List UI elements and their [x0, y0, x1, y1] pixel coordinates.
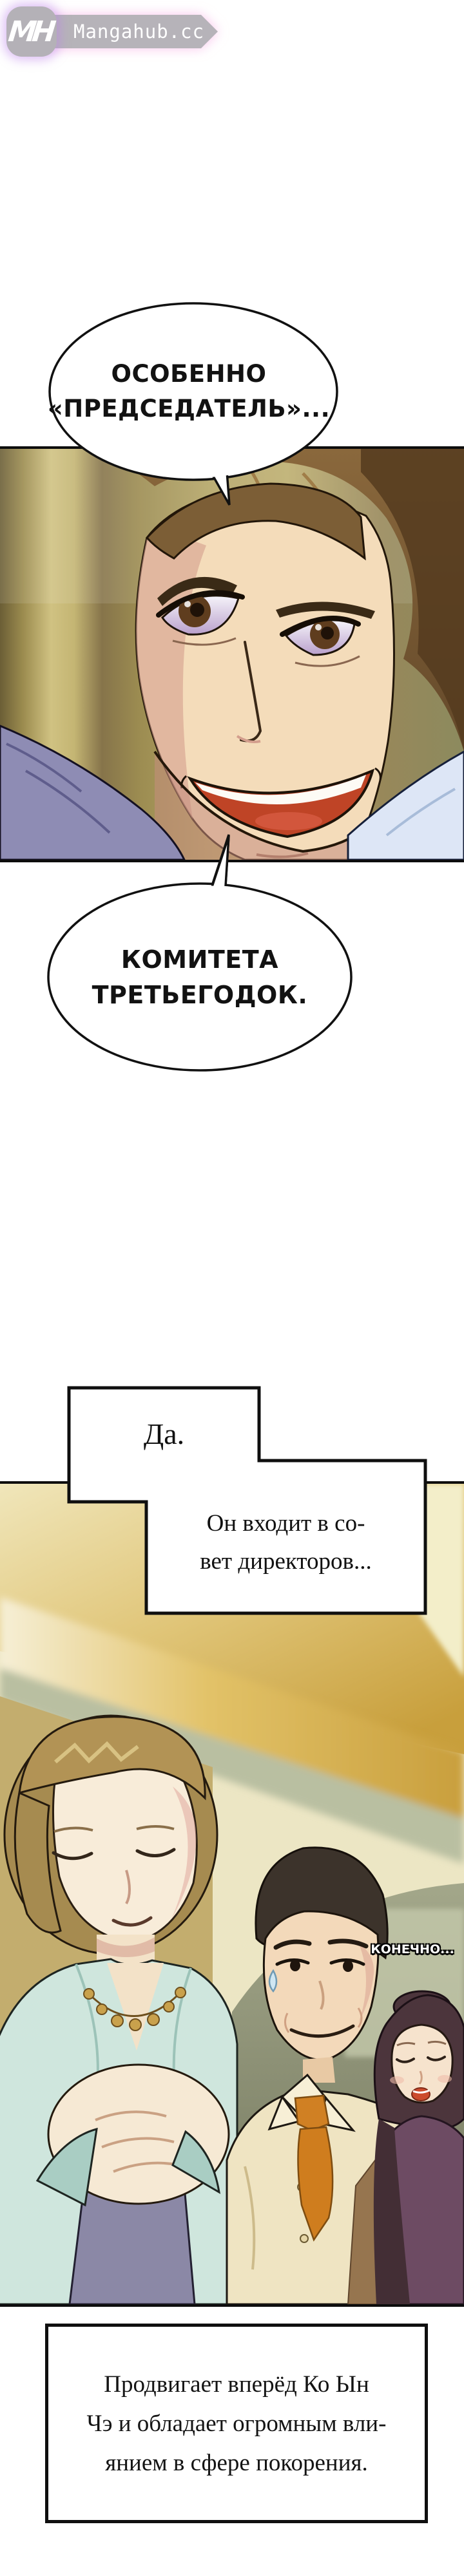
bubble-1-line-2: «ПРЕДСЕДАТЕЛЬ»...	[37, 392, 340, 426]
speech-bubble-1: ОСОБЕННО «ПРЕДСЕДАТЕЛЬ»...	[37, 290, 340, 512]
logo-monogram: MH	[6, 15, 57, 48]
narration-box-2-line-2: вет директоров...	[153, 1542, 419, 1580]
speech-bubble-2-text: КОМИТЕТА ТРЕТЬЕГОДОК.	[35, 942, 364, 1013]
webtoon-page: Mangahub.cc MH	[0, 0, 464, 2576]
logo-banner: Mangahub.cc	[36, 15, 218, 48]
woman-young	[374, 1991, 464, 2304]
narration-box-2-line-1: Он входит в со-	[153, 1504, 419, 1542]
bubble-1-line-1: ОСОБЕННО	[37, 357, 340, 392]
woman-young-mouth	[412, 2088, 430, 2101]
caption-box: Продвигает вперёд Ко Ын Чэ и обладает ог…	[45, 2324, 428, 2523]
speech-bubble-2: КОМИТЕТА ТРЕТЬЕГОДОК.	[35, 818, 364, 1075]
caption-line-2: Чэ и обладает огромным вли-	[87, 2404, 387, 2443]
bubble-2-line-1: КОМИТЕТА	[35, 942, 364, 978]
caption-line-1: Продвигает вперёд Ко Ын	[104, 2365, 369, 2404]
narration-box-2-text: Он входит в со- вет директоров...	[153, 1504, 419, 1580]
narration-box-1-text: Да.	[69, 1417, 259, 1451]
site-logo[interactable]: Mangahub.cc MH	[0, 0, 232, 64]
logo-badge: MH	[6, 6, 57, 57]
logo-banner-label: Mangahub.cc	[36, 15, 218, 48]
caption-line-3: янием в сфере покорения.	[105, 2443, 368, 2483]
background-shout-text: КОНЕЧНО...	[365, 1942, 460, 1956]
speech-bubble-1-text: ОСОБЕННО «ПРЕДСЕДАТЕЛЬ»...	[37, 357, 340, 426]
woman-elder	[0, 1716, 237, 2304]
bubble-2-line-2: ТРЕТЬЕГОДОК.	[35, 978, 364, 1013]
